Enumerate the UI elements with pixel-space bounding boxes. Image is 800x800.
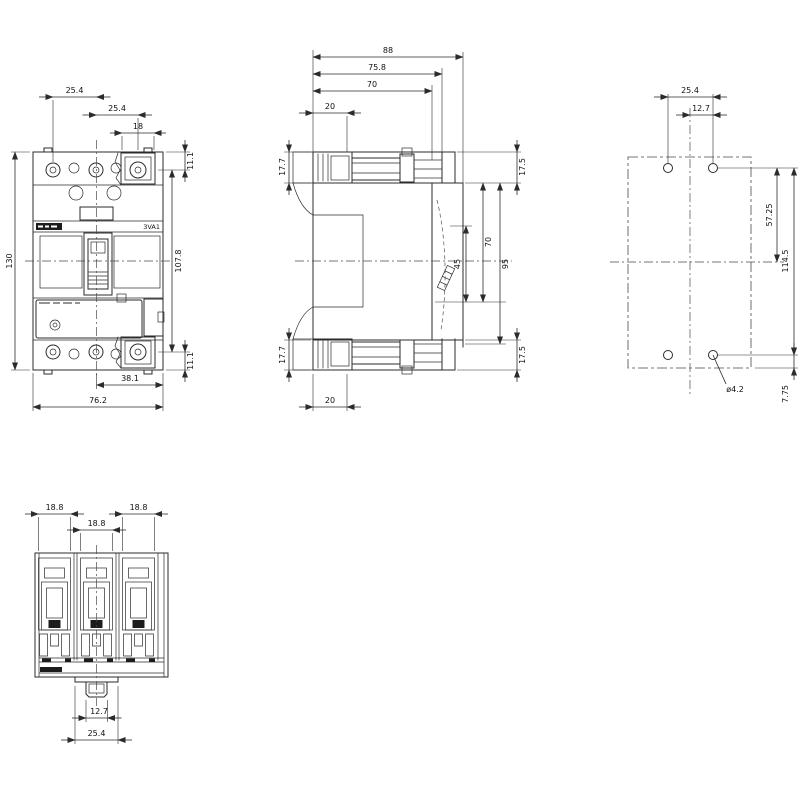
dim-terminal-depth-top: 20: [299, 102, 361, 113]
side-dimensions: 88 75.8 70 20 17.7: [278, 46, 527, 411]
cover-screw: [69, 163, 79, 173]
terminal-screw: [89, 163, 103, 177]
dim-half-width: 38.1: [97, 374, 164, 385]
svg-text:130: 130: [5, 253, 14, 268]
terminal-slot: [45, 568, 65, 578]
svg-text:75.8: 75.8: [368, 63, 386, 72]
break-line: [115, 153, 121, 185]
svg-text:76.2: 76.2: [89, 396, 107, 405]
bottom-body: [35, 553, 168, 697]
terminal-screw: [46, 345, 60, 359]
side-extension-lines: [284, 50, 521, 411]
svg-text:107.8: 107.8: [174, 250, 183, 273]
dim-mount-offset: 45: [453, 226, 466, 302]
dim-terminal-depth-bottom: 20: [299, 396, 361, 407]
bottom-base-marks: [40, 659, 155, 673]
dim-half-height: 57.25: [765, 168, 777, 262]
terminal-screw-slot: [50, 167, 56, 173]
drilling-dimensions: 25.4 12.7 57.25 114.5 7.75: [654, 86, 798, 403]
cover-curve-bottom: [293, 307, 313, 339]
break-line: [115, 337, 121, 368]
cover-top: [293, 152, 313, 183]
terminal-block: [313, 339, 352, 370]
dim-rear-span: 95: [500, 183, 510, 344]
drilling-extension-lines: [668, 94, 798, 368]
box-terminal-screw-slot: [135, 167, 141, 173]
svg-text:70: 70: [484, 237, 493, 247]
base-mark: [107, 659, 113, 663]
svg-text:57.25: 57.25: [765, 204, 774, 227]
cover-screw: [111, 349, 121, 359]
dim-terminal-height-bottom: 17.7: [278, 328, 289, 382]
svg-text:17.5: 17.5: [518, 158, 527, 176]
svg-text:7.75: 7.75: [781, 385, 790, 403]
svg-text:114.5: 114.5: [781, 250, 790, 273]
front-lower-cover: [36, 299, 164, 338]
leader-line: [713, 355, 726, 384]
clamp-mark: [133, 620, 145, 628]
svg-text:12.7: 12.7: [90, 707, 108, 716]
mounting-outline: [628, 157, 751, 368]
dimension-drawing: 3VA1: [0, 0, 800, 800]
face-panel-right: [114, 236, 160, 288]
connector-lines: [352, 347, 400, 357]
rating-label-area: [36, 300, 142, 338]
toggle-grip-lines: [89, 272, 107, 284]
terminal-screw-lines: [318, 341, 328, 368]
svg-text:45: 45: [453, 259, 462, 269]
barrier-slots: [40, 634, 70, 656]
dim-overall-width: 76.2: [33, 396, 163, 407]
svg-text:18.8: 18.8: [46, 503, 64, 512]
svg-text:17.7: 17.7: [278, 346, 287, 364]
svg-text:70: 70: [367, 80, 377, 89]
mounting-hole: [709, 164, 718, 173]
base-mark: [126, 659, 135, 663]
face-hole: [107, 186, 121, 200]
svg-text:12.7: 12.7: [692, 104, 710, 113]
clamp-inner: [131, 588, 147, 618]
terminal-slot: [129, 568, 149, 578]
front-centerlines: [25, 140, 172, 378]
svg-text:18.8: 18.8: [88, 519, 106, 528]
box-terminal: [121, 337, 155, 368]
dim-top-terminal-offset: 11.1: [185, 140, 195, 182]
bottom-pole-3: [123, 558, 155, 656]
svg-text:25.4: 25.4: [681, 86, 699, 95]
box-terminal-screw: [130, 162, 146, 178]
drilling-centerlines: [610, 108, 784, 395]
mounting-holes: [664, 164, 718, 360]
bottom-pole-2: [81, 558, 113, 656]
cover-bottom: [293, 339, 313, 370]
dim-pole-pitch-1: 25.4: [39, 86, 111, 97]
connector-lines: [352, 163, 400, 173]
terminal-screw-lines: [318, 154, 328, 181]
base-bar: [40, 667, 62, 672]
terminal-screw-slot: [93, 167, 99, 173]
box-terminal-inner: [125, 157, 151, 180]
svg-text:25.4: 25.4: [108, 104, 126, 113]
toggle-handle-top: [91, 242, 105, 253]
dim-bottom-edge-offset: 7.75: [781, 343, 794, 403]
box-terminal-screw-slot: [135, 349, 141, 355]
dim-body-depth: 70: [313, 80, 432, 91]
side-view: 88 75.8 70 20 17.7: [278, 46, 527, 411]
dim-inner-height: 107.8: [172, 170, 183, 352]
mounting-hole: [664, 351, 673, 360]
side-bottom-terminal: [313, 339, 442, 374]
base-mark: [42, 659, 51, 663]
dim-terminal-opening-3: 18.8: [109, 503, 168, 514]
bottom-walls: [39, 553, 164, 677]
dim-hole-pitch: 25.4: [654, 86, 727, 97]
terminal-screw-slot: [93, 349, 99, 355]
terminal-screw-slot: [50, 349, 56, 355]
dim-bottom-terminal-offset: 11.1: [185, 340, 195, 382]
base-mark: [65, 659, 71, 663]
box-terminal-screw: [130, 344, 146, 360]
connector-end: [400, 340, 414, 368]
svg-text:11.1: 11.1: [186, 352, 195, 370]
svg-text:18.8: 18.8: [130, 503, 148, 512]
product-label: 3VA1: [143, 223, 160, 231]
dim-front-height-bottom: 17.5: [517, 328, 527, 382]
connector-bar: [352, 158, 400, 180]
svg-text:25.4: 25.4: [66, 86, 84, 95]
terminal-cavity: [331, 156, 349, 180]
front-top-terminals: [46, 153, 155, 185]
side-extension: [144, 299, 163, 336]
svg-text:ø4.2: ø4.2: [726, 385, 744, 394]
dim-depth-to-rail: 75.8: [313, 63, 442, 74]
bottom-view: 18.8 18.8 18.8 12.7: [25, 503, 168, 744]
dim-overall-depth: 88: [313, 46, 463, 57]
side-top-terminal: [313, 148, 442, 183]
face-hole: [69, 186, 83, 200]
svg-text:20: 20: [325, 102, 335, 111]
front-bottom-terminals: [46, 337, 155, 368]
svg-text:18: 18: [133, 122, 143, 131]
svg-text:17.7: 17.7: [278, 158, 287, 176]
base-mark: [84, 659, 93, 663]
box-terminal: [121, 153, 155, 184]
clamp-mark: [49, 620, 61, 628]
svg-text:17.5: 17.5: [518, 346, 527, 364]
dim-overall-height: 130: [5, 152, 15, 370]
dim-terminal-opening-2: 18.8: [67, 519, 126, 530]
bottom-outline: [35, 553, 168, 677]
cover-curve-top: [293, 183, 313, 215]
terminal-screw: [89, 345, 103, 359]
hidden-contour: [437, 200, 445, 330]
barrier-slots: [124, 634, 154, 656]
dimension-drawing-page: 3VA1: [0, 0, 800, 800]
dim-hole-half-pitch: 12.7: [676, 104, 727, 115]
dim-terminal-height-top: 17.7: [278, 140, 289, 195]
face-panel-left: [40, 236, 82, 288]
mounting-hole: [664, 164, 673, 173]
svg-text:95: 95: [501, 259, 510, 269]
terminal-block: [313, 152, 352, 183]
terminal-opening: [123, 558, 155, 630]
svg-text:20: 20: [325, 396, 335, 405]
dim-clip-width: 12.7: [72, 707, 122, 718]
cover-screw: [69, 349, 79, 359]
connector-bar: [352, 342, 400, 364]
connector-end: [400, 154, 414, 182]
drilling-plan-view: 25.4 12.7 57.25 114.5 7.75: [610, 86, 798, 403]
dim-terminal-opening-1: 18.8: [25, 503, 84, 514]
dim-hole-diameter: ø4.2: [713, 355, 744, 394]
dim-pole-pitch-2: 25.4: [83, 104, 153, 115]
terminal-cavity: [331, 342, 349, 366]
dim-mount-span: 70: [483, 183, 493, 302]
svg-text:88: 88: [383, 46, 393, 55]
svg-text:25.4: 25.4: [88, 729, 106, 738]
cover-fixing-screw: [50, 320, 60, 330]
front-view: 3VA1: [5, 86, 195, 411]
terminal-screw: [46, 163, 60, 177]
bottom-pole-1: [39, 558, 71, 656]
svg-text:11.1: 11.1: [186, 152, 195, 170]
dim-hole-row-span: 114.5: [781, 168, 794, 355]
dim-clip-span: 25.4: [61, 729, 132, 740]
svg-text:38.1: 38.1: [121, 374, 139, 383]
clamp-inner: [47, 588, 63, 618]
terminal-opening: [39, 558, 71, 630]
dim-front-height-top: 17.5: [517, 140, 527, 195]
cover-fixing-screw-slot: [53, 323, 57, 327]
front-toggle-area: [40, 233, 160, 302]
base-mark: [149, 659, 155, 663]
